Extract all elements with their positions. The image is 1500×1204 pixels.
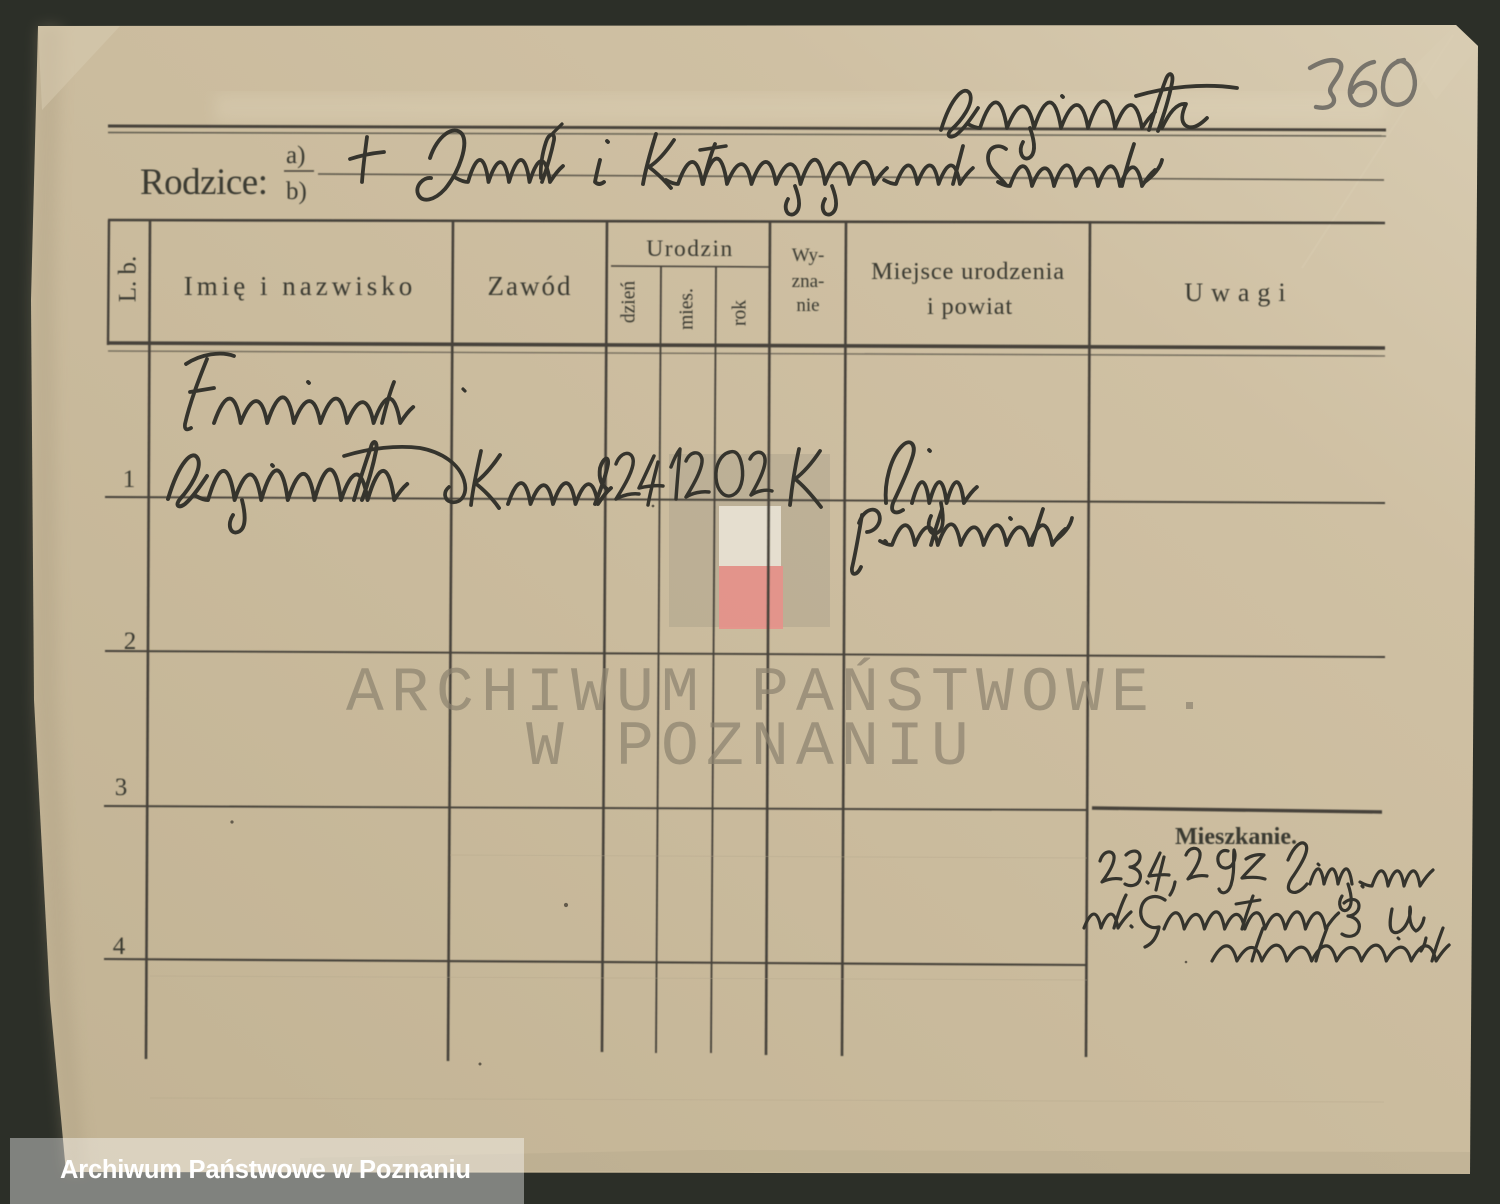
svg-text:Miejsce urodzenia: Miejsce urodzenia xyxy=(871,258,1065,285)
svg-text:a): a) xyxy=(286,142,305,169)
svg-text:Imię i nazwisko: Imię i nazwisko xyxy=(184,271,416,301)
svg-text:rok: rok xyxy=(729,300,750,326)
svg-text:L. b.: L. b. xyxy=(115,256,142,303)
svg-text:Archiwum Państwowe w Poznaniu: Archiwum Państwowe w Poznaniu xyxy=(60,1156,471,1184)
svg-text:Zawód: Zawód xyxy=(488,271,573,301)
svg-text:4: 4 xyxy=(113,933,126,960)
svg-text:zna-: zna- xyxy=(792,271,825,292)
svg-text:nie: nie xyxy=(796,295,819,316)
svg-text:i powiat: i powiat xyxy=(927,293,1013,320)
svg-text:dzień: dzień xyxy=(618,281,639,323)
svg-text:Rodzice:: Rodzice: xyxy=(140,162,268,203)
svg-text:b): b) xyxy=(286,178,307,205)
svg-text:2: 2 xyxy=(124,628,137,655)
svg-text:Wy-: Wy- xyxy=(792,245,825,266)
svg-text:Uwagi: Uwagi xyxy=(1184,278,1293,307)
svg-text:mies.: mies. xyxy=(676,288,697,330)
svg-text:Urodzin: Urodzin xyxy=(646,236,734,262)
svg-text:Mieszkanie.: Mieszkanie. xyxy=(1175,824,1297,850)
svg-text:1: 1 xyxy=(123,466,136,493)
svg-text:3: 3 xyxy=(115,774,128,801)
svg-text:W POZNANIU: W POZNANIU xyxy=(526,712,976,783)
